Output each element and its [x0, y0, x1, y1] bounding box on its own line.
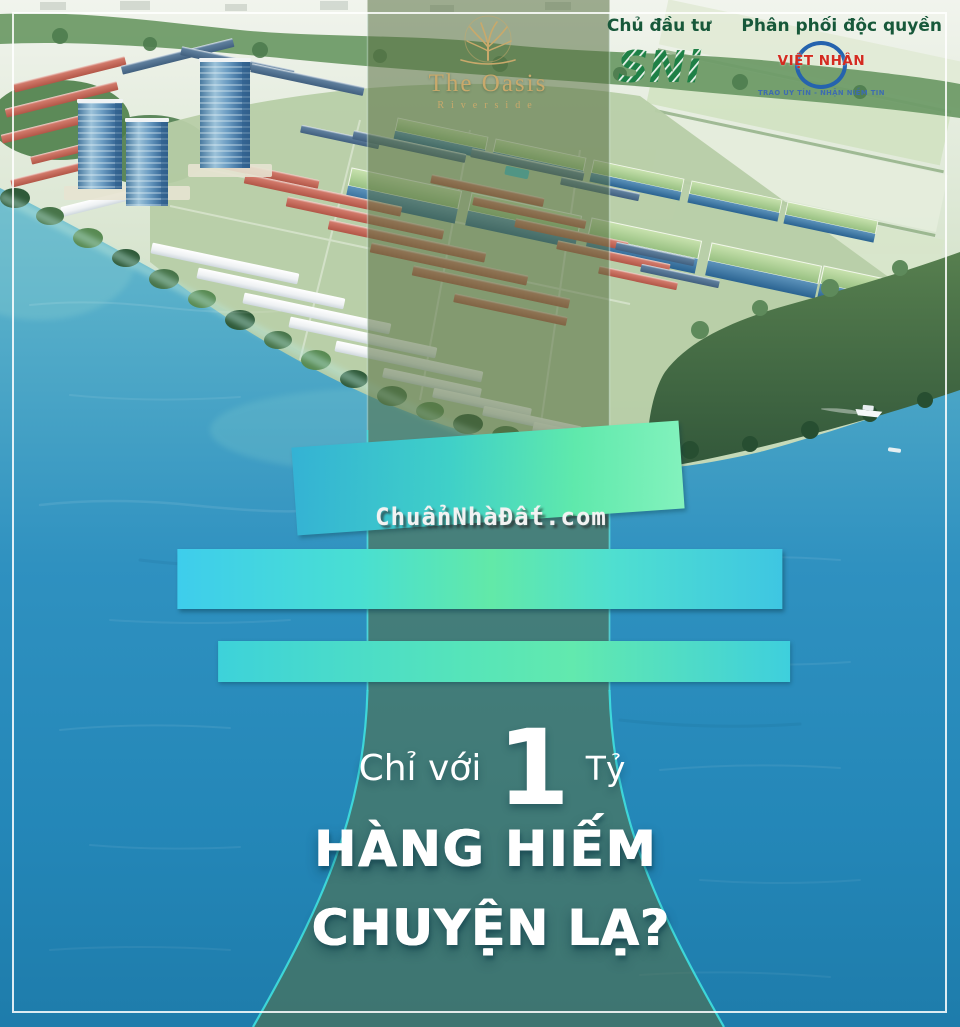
poster: The Oasis Riverside Chủ đầu tư SNi Phân … — [0, 0, 960, 1027]
tagline-1: HÀNG HIẾM — [314, 824, 657, 874]
viet-nhan-name: VIỆT NHÂN — [778, 53, 865, 69]
price-unit: Tỷ — [586, 749, 626, 788]
headline-sub: Đẳng Cấp Bậc Nhất Bình Dương — [218, 641, 790, 682]
developer-block: Chủ đầu tư SNi — [607, 16, 712, 92]
distributor-block: Phân phối độc quyền VIỆT NHÂN TRAO UY TÍ… — [741, 16, 942, 106]
distributor-label: Phân phối độc quyền — [741, 16, 942, 36]
price-offer: Chỉ với 1 Tỷ — [359, 724, 626, 812]
tagline-2: CHUYỆN LẠ? — [312, 903, 670, 953]
watermark: ChuẩnNhàĐất.com — [375, 503, 607, 531]
project-logo-subtitle: Riverside — [400, 100, 576, 111]
gold-tree-icon — [451, 14, 525, 70]
price-number: 1 — [497, 724, 569, 812]
viet-nhan-logo: VIỆT NHÂN TRAO UY TÍN - NHẬN NIỀM TIN — [741, 40, 901, 106]
price-prefix: Chỉ với — [359, 748, 482, 789]
sni-logo: SNi — [609, 40, 709, 92]
headline-main: BIỆT THỰ VEN SÔNG — [177, 549, 782, 609]
partners-block: Chủ đầu tư SNi Phân phối độc quyền VIỆT … — [607, 16, 942, 106]
developer-label: Chủ đầu tư — [607, 16, 712, 36]
project-logo: The Oasis Riverside — [400, 14, 576, 111]
project-logo-name: The Oasis — [400, 70, 576, 98]
sni-logo-text: SNi — [617, 42, 702, 92]
viet-nhan-tagline: TRAO UY TÍN - NHẬN NIỀM TIN — [758, 89, 885, 97]
